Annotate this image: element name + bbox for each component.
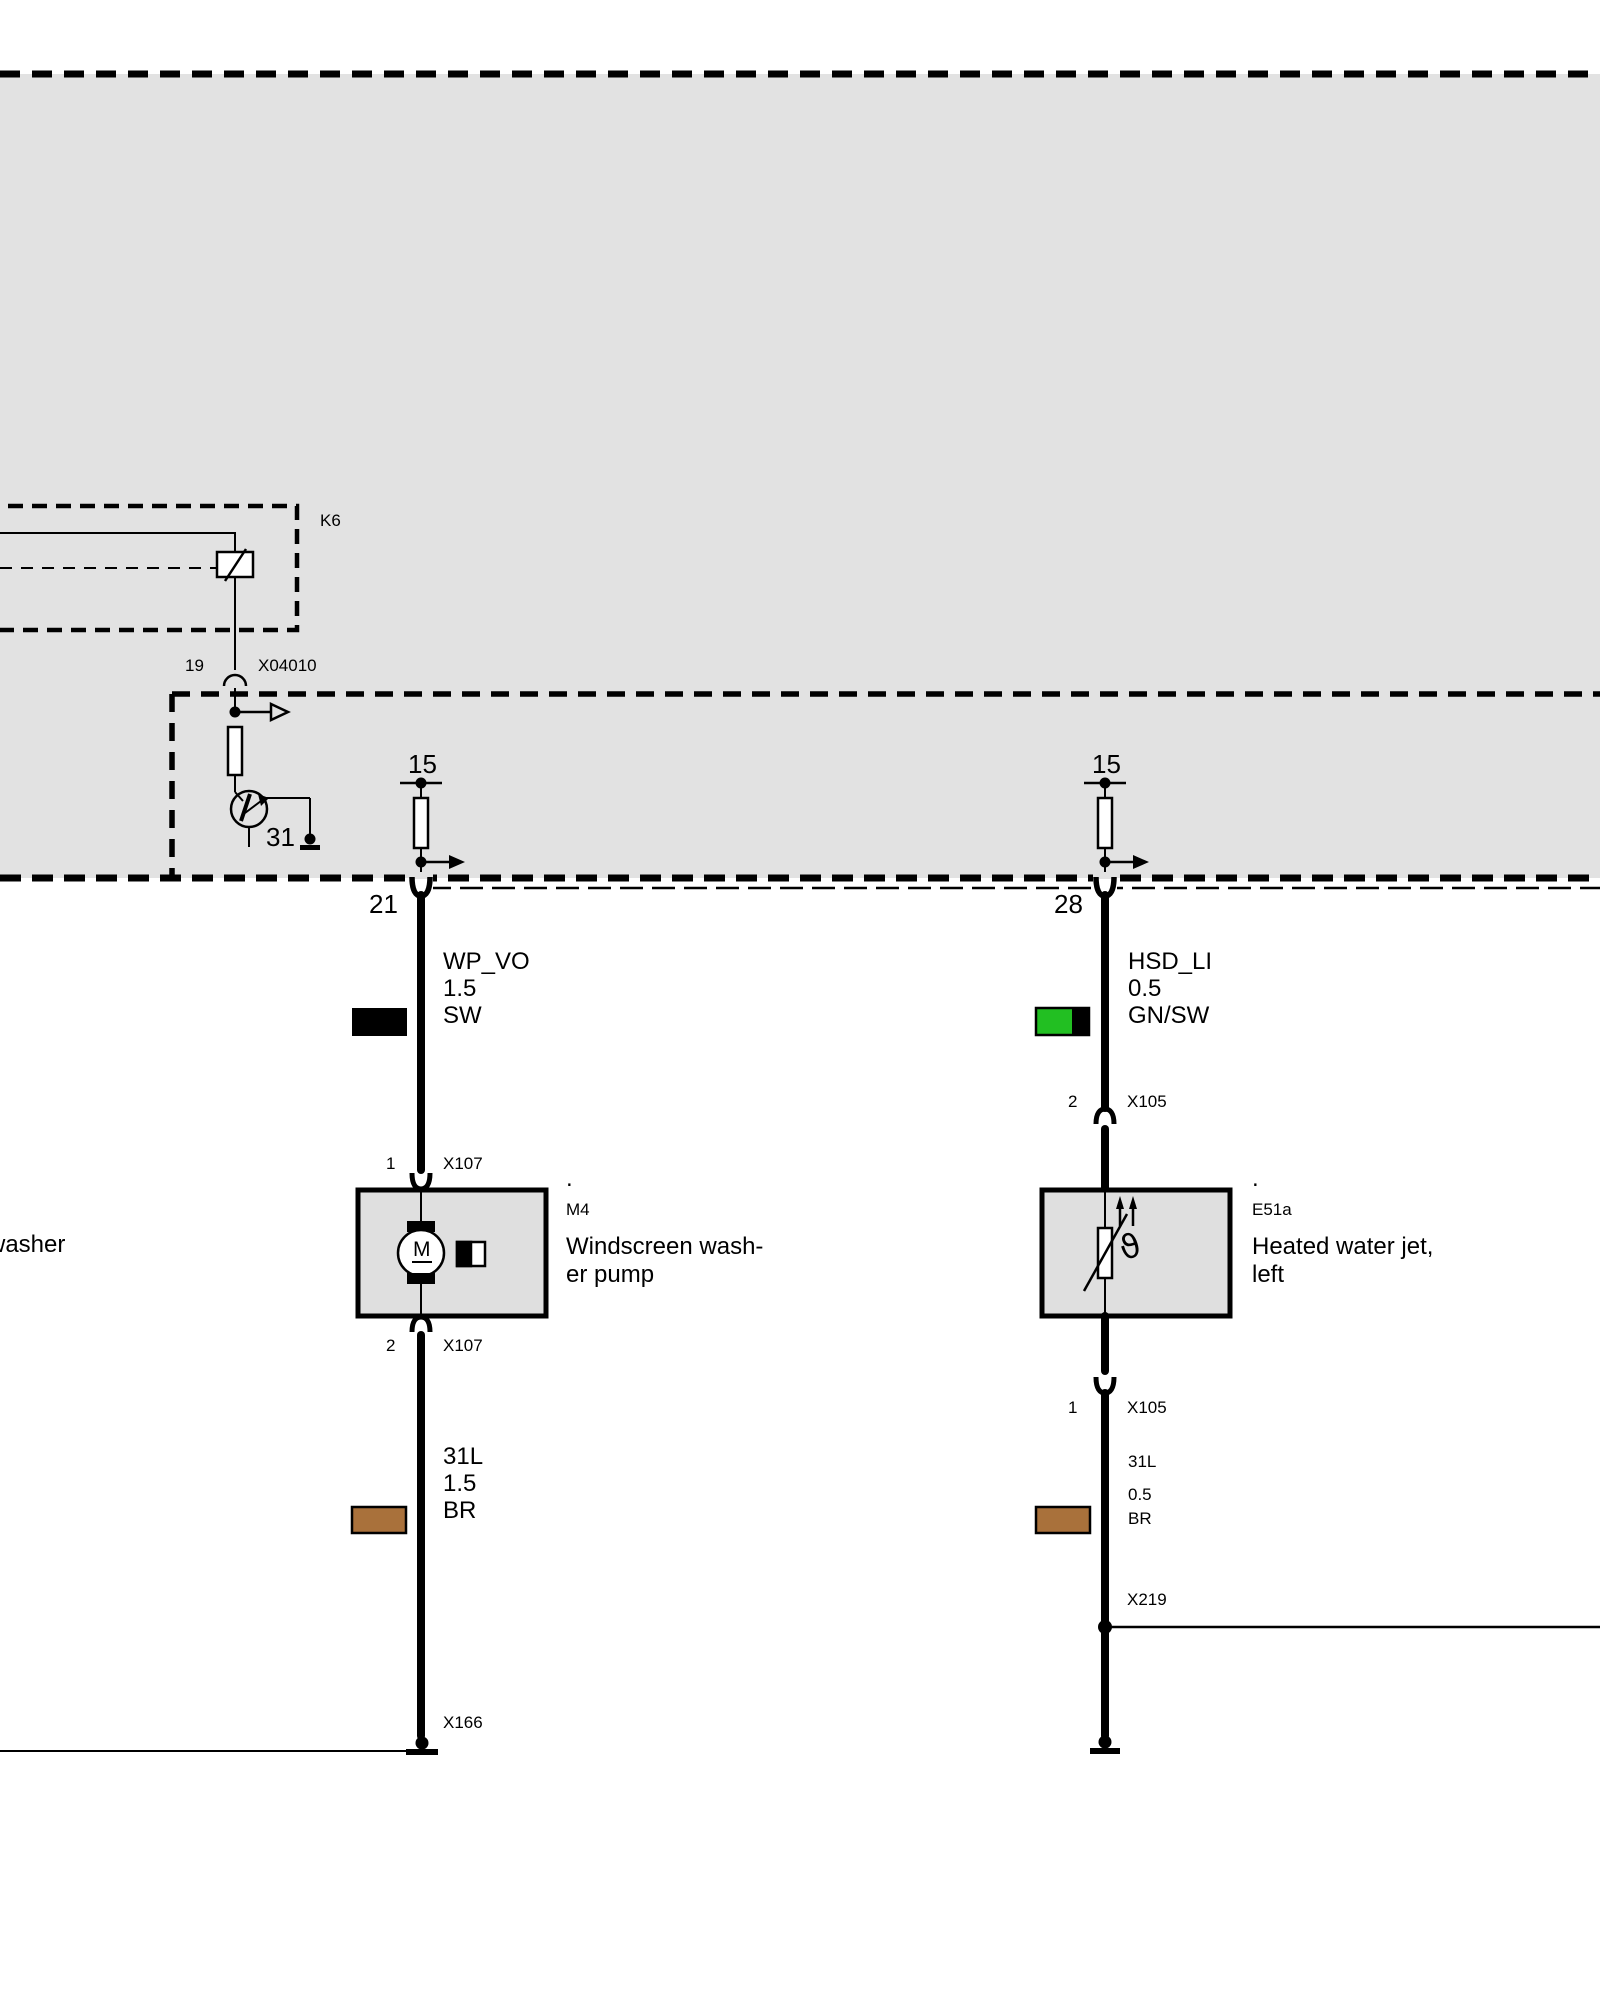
m4-name-line2: er pump — [566, 1262, 654, 1287]
x107-bottom-pin-label: 2 — [386, 1337, 395, 1355]
x219-junction — [1098, 1620, 1600, 1634]
fuse-left-label: 15 — [408, 751, 437, 778]
wire-name-hsdli: HSD_LI — [1128, 949, 1212, 974]
x105-top-label: X105 — [1127, 1093, 1167, 1111]
wire-gauge-wpvo: 1.5 — [443, 976, 476, 1001]
edge-continuation-label: washer — [0, 1232, 65, 1257]
m4-code-label: M4 — [566, 1201, 590, 1219]
terminal-31-label: 31 — [266, 824, 295, 851]
fuse-right-label: 15 — [1092, 751, 1121, 778]
resistor-icon — [228, 727, 242, 775]
e51a-code-label: E51a — [1252, 1201, 1292, 1219]
x105-pin2-connector-icon — [1096, 1109, 1114, 1124]
relay-contact-icon — [217, 549, 253, 581]
x107-top-pin-label: 1 — [386, 1155, 395, 1173]
x107-pin1-connector-icon — [412, 1173, 430, 1189]
wiring-diagram-canvas — [0, 0, 1600, 2000]
x166-label: X166 — [443, 1714, 483, 1732]
wire-name-31l-left: 31L — [443, 1444, 483, 1469]
e51a-name-line2: left — [1252, 1262, 1284, 1287]
wire-name-31l-right: 31L — [1128, 1453, 1156, 1471]
pin-21-label: 21 — [369, 891, 398, 918]
x04010-label: X04010 — [258, 657, 317, 675]
color-swatch-gnsw — [1036, 1008, 1089, 1035]
e51a-dot-label: . — [1252, 1166, 1259, 1191]
m4-name-line1: Windscreen wash- — [566, 1234, 763, 1259]
wire-name-wpvo: WP_VO — [443, 949, 530, 974]
wire-color-wpvo: SW — [443, 1003, 482, 1028]
wire-color-hsdli: GN/SW — [1128, 1003, 1209, 1028]
wire-gauge-31l-right: 0.5 — [1128, 1486, 1152, 1504]
wire-gauge-31l-left: 1.5 — [443, 1471, 476, 1496]
wiring-diagram-page: K6 19 X04010 31 15 15 21 28 WP_VO 1.5 SW… — [0, 0, 1600, 2000]
ground-stud-icon-right — [1090, 1736, 1120, 1755]
m4-component-box — [358, 1190, 546, 1316]
x105-top-pin-label: 2 — [1068, 1093, 1077, 1111]
x04010-pin-label: 19 — [185, 657, 204, 675]
wire-color-31l-left: BR — [443, 1498, 476, 1523]
color-swatch-br-left — [352, 1507, 406, 1533]
x107-bottom-label: X107 — [443, 1337, 483, 1355]
pump-icon — [457, 1242, 485, 1266]
relay-k6-label: K6 — [320, 512, 341, 530]
color-swatch-sw — [352, 1008, 407, 1036]
motor-m-symbol: M — [412, 1240, 432, 1263]
x107-pin2-connector-icon — [412, 1317, 430, 1332]
x105-bottom-label: X105 — [1127, 1399, 1167, 1417]
e51a-name-line1: Heated water jet, — [1252, 1234, 1433, 1259]
wire-color-31l-right: BR — [1128, 1510, 1152, 1528]
wire-gauge-hsdli: 0.5 — [1128, 976, 1161, 1001]
x107-top-label: X107 — [443, 1155, 483, 1173]
x219-label: X219 — [1127, 1591, 1167, 1609]
pin-28-label: 28 — [1054, 891, 1083, 918]
x166-ground-icon — [0, 1737, 438, 1756]
color-swatch-br-right — [1036, 1507, 1090, 1533]
x105-bottom-pin-label: 1 — [1068, 1399, 1077, 1417]
m4-dot-label: . — [566, 1166, 573, 1191]
